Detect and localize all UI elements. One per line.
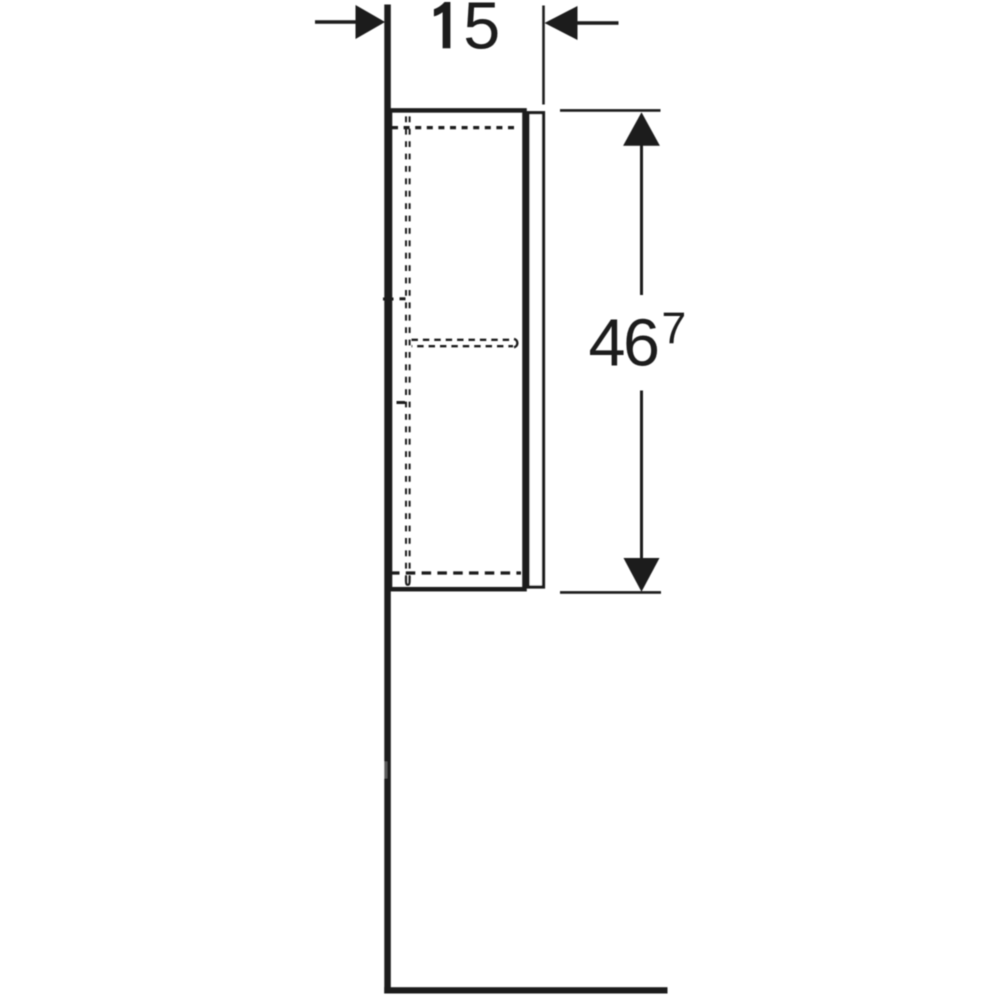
svg-text:5: 5 xyxy=(463,0,500,63)
svg-text:7: 7 xyxy=(662,304,687,353)
svg-text:46: 46 xyxy=(589,306,658,380)
